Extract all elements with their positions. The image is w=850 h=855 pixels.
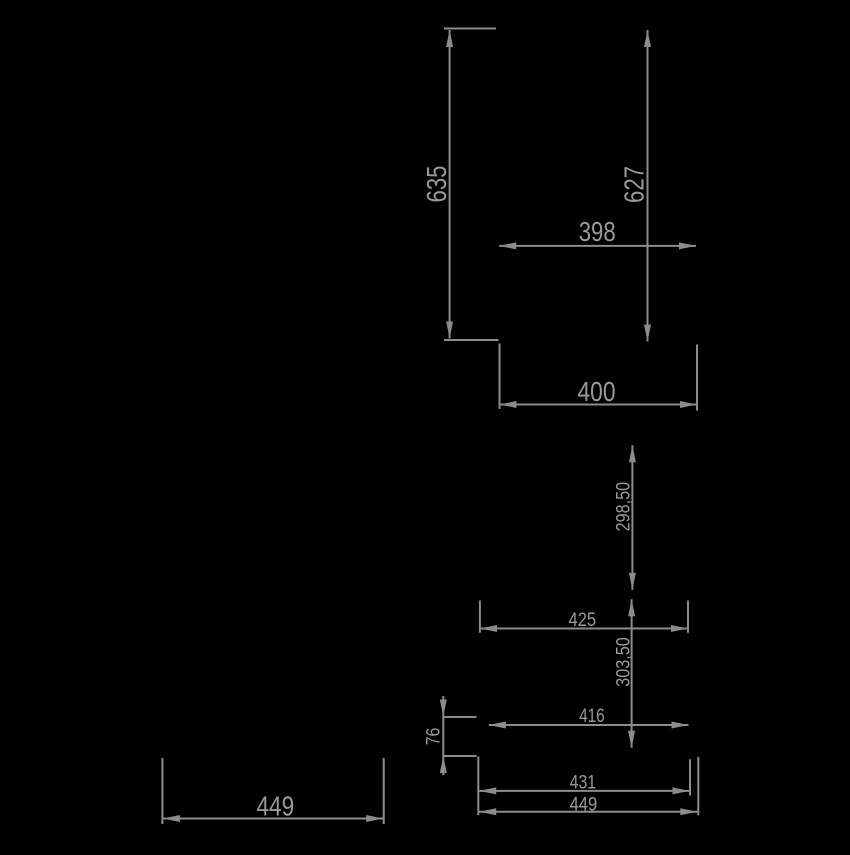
svg-text:449: 449 — [570, 793, 598, 815]
svg-text:398: 398 — [579, 216, 616, 247]
svg-text:76: 76 — [423, 728, 445, 746]
svg-text:431: 431 — [570, 771, 597, 793]
svg-text:303,50: 303,50 — [613, 637, 635, 687]
svg-text:425: 425 — [569, 609, 597, 631]
svg-text:635: 635 — [421, 166, 452, 203]
svg-text:298,50: 298,50 — [613, 482, 635, 532]
svg-text:400: 400 — [578, 376, 616, 407]
svg-text:449: 449 — [257, 790, 295, 821]
svg-text:416: 416 — [579, 705, 605, 727]
svg-text:627: 627 — [618, 166, 649, 203]
